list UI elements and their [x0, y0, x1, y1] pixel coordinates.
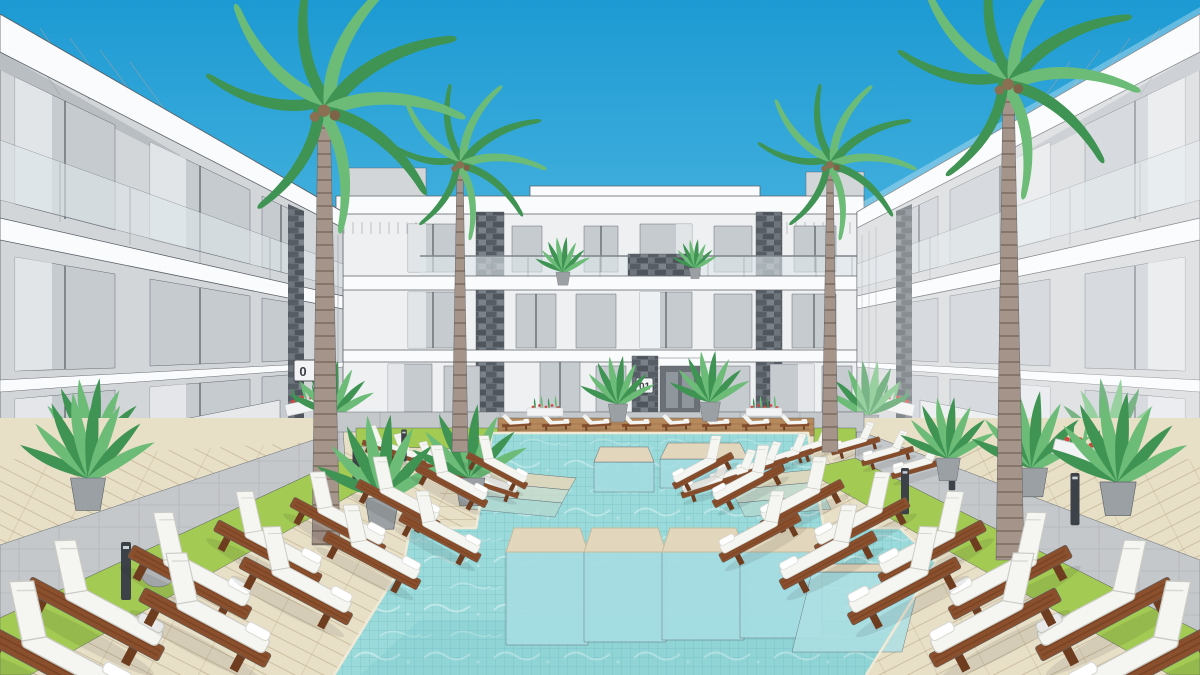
bollard-light	[1071, 473, 1080, 525]
architectural-rendering: 01 0	[0, 0, 1200, 675]
scene-canvas: 01 0	[0, 0, 1200, 675]
center-building: 01	[336, 168, 864, 414]
unit-number-text: 0	[299, 364, 306, 379]
